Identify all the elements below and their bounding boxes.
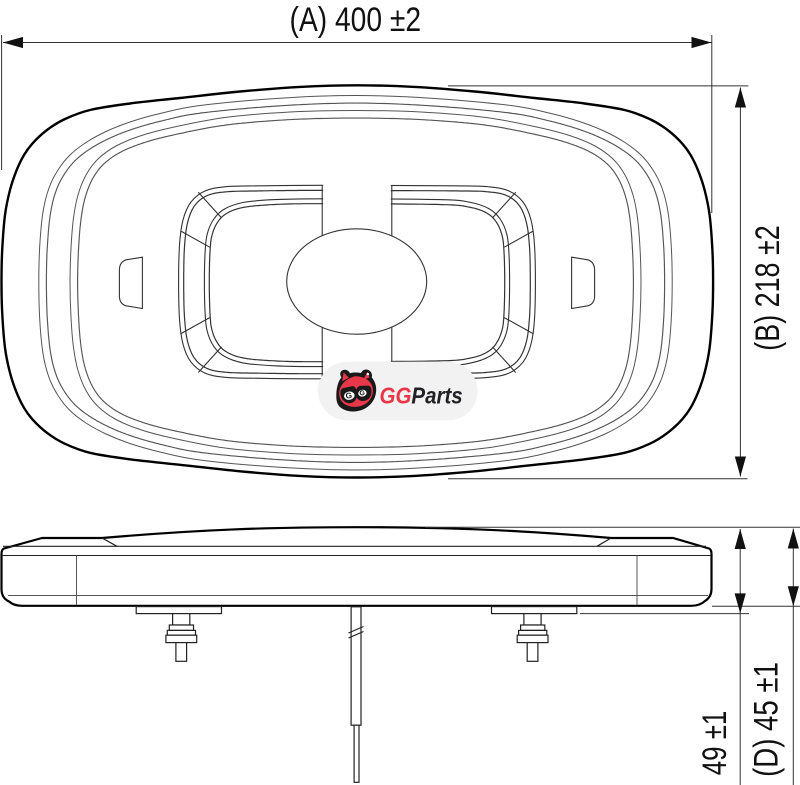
- svg-text:(A) 400 ±2: (A) 400 ±2: [290, 0, 422, 39]
- svg-text:GGParts: GGParts: [380, 382, 463, 409]
- svg-text:G: G: [345, 391, 353, 401]
- svg-text:(D) 45 ±1: (D) 45 ±1: [747, 662, 786, 777]
- svg-text:49 ±1: 49 ±1: [695, 711, 733, 776]
- svg-text:(B) 218 ±2: (B) 218 ±2: [748, 225, 787, 350]
